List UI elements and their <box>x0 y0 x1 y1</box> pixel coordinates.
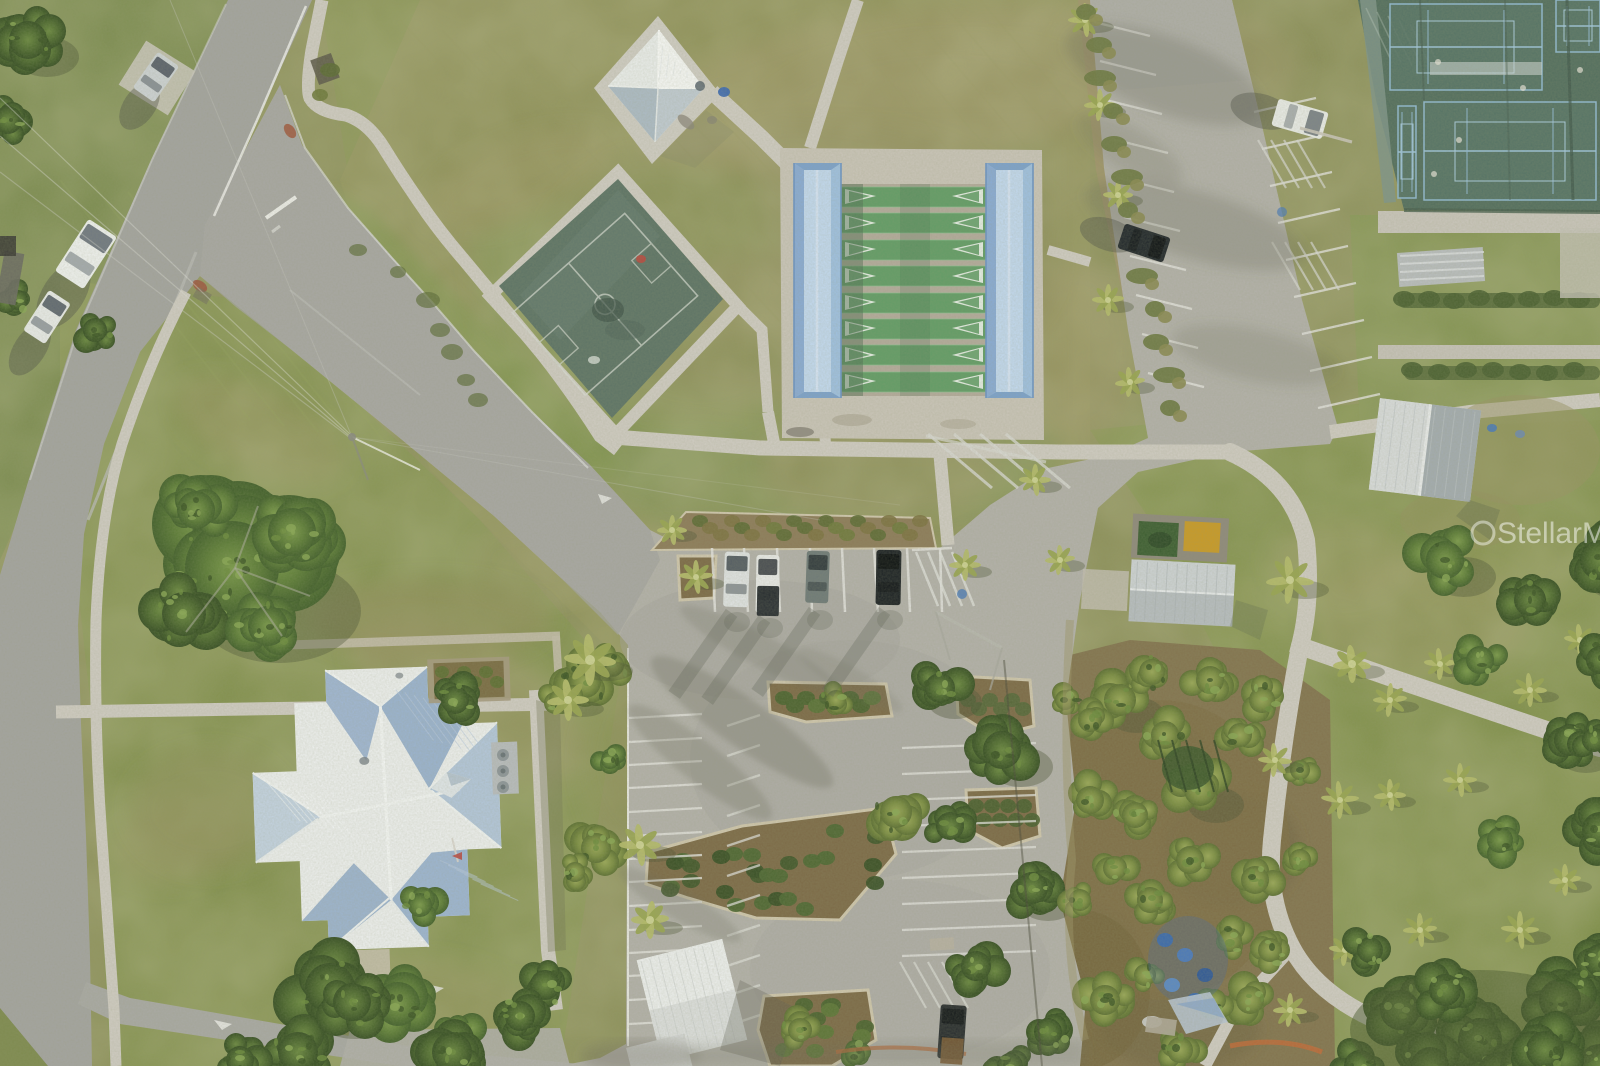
svg-text:StellarMLS: StellarMLS <box>1497 517 1600 550</box>
